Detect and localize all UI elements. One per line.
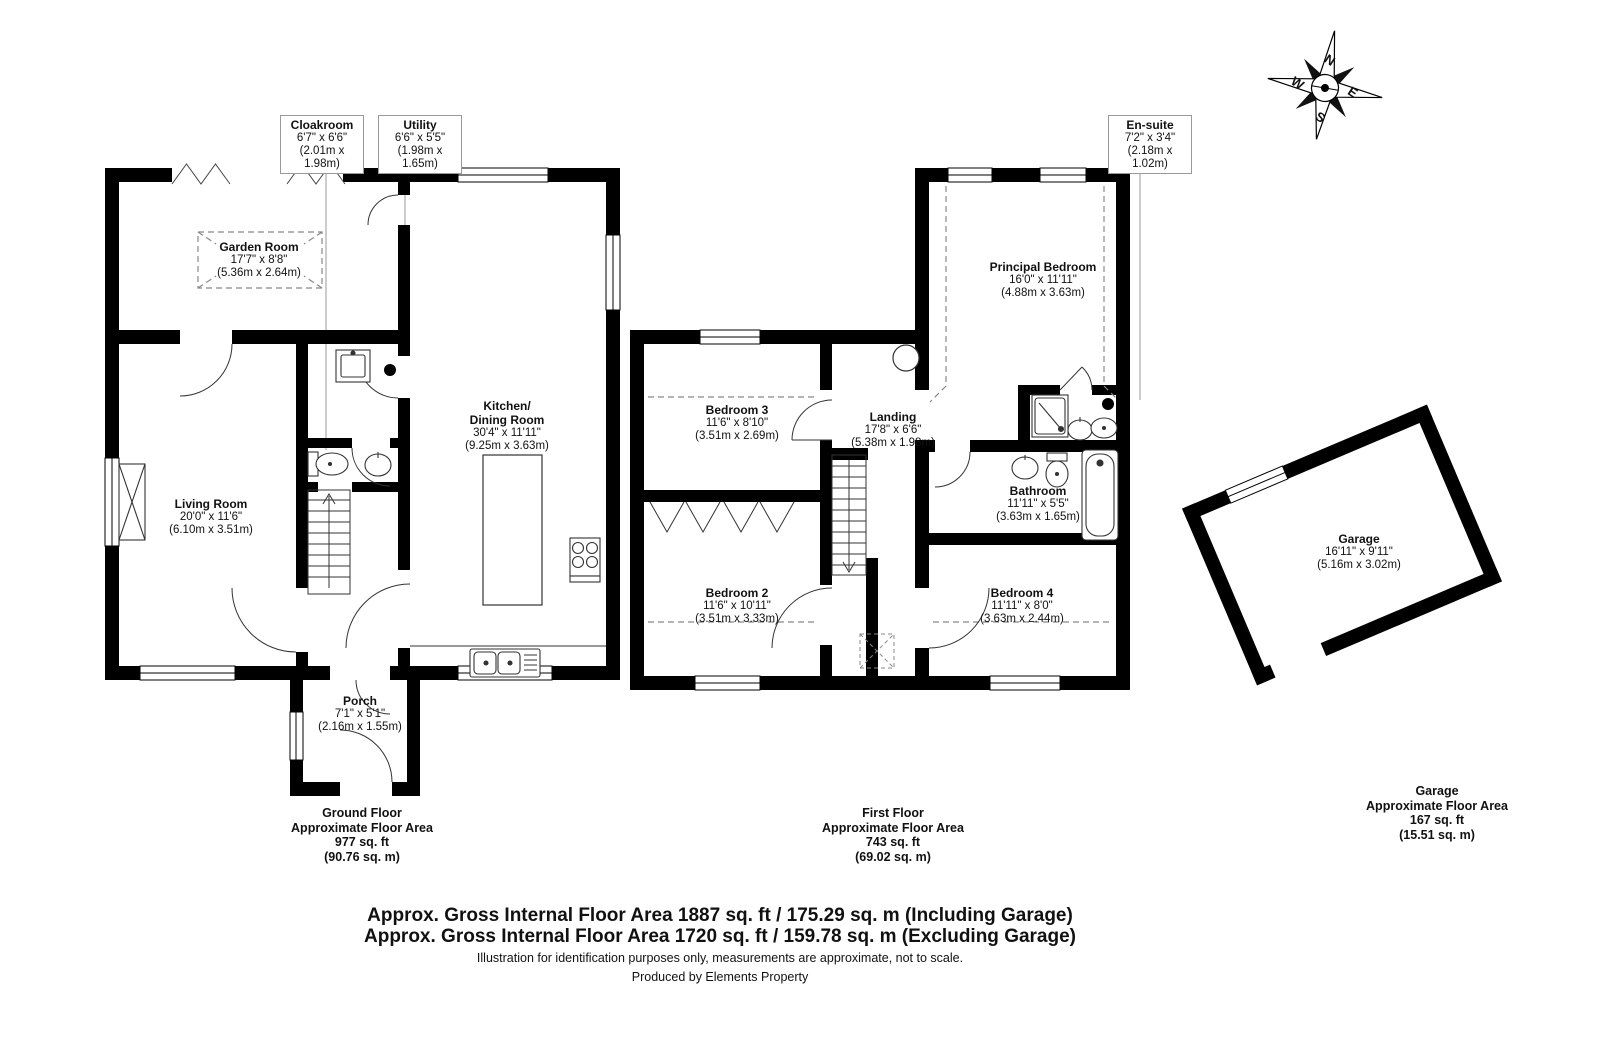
living-room-size-imperial: 20'0" x 11'6" [169, 511, 253, 524]
label-principal-bedroom: Principal Bedroom 16'0" x 11'11" (4.88m … [990, 260, 1097, 300]
kitchen-island [483, 455, 542, 605]
garage-summary: Garage Approximate Floor Area 167 sq. ft… [1366, 784, 1508, 842]
label-bedroom-3: Bedroom 3 11'6" x 8'10" (3.51m x 2.69m) [695, 403, 779, 443]
footer-text-block: Approx. Gross Internal Floor Area 1887 s… [364, 905, 1076, 985]
kitchen-size-metric: (9.25m x 3.63m) [465, 440, 549, 453]
bathroom-size-metric: (3.63m x 1.65m) [996, 511, 1080, 524]
ground-floor-area-label: Approximate Floor Area [291, 821, 433, 836]
garage-area-sqm: (15.51 sq. m) [1366, 828, 1508, 843]
fireplace [119, 464, 145, 540]
garage-name: Garage [1317, 532, 1401, 546]
bedroom-2-name: Bedroom 2 [695, 586, 779, 600]
garage-area-label: Approximate Floor Area [1366, 799, 1508, 814]
garage-area-sqft: 167 sq. ft [1366, 813, 1508, 828]
garden-room-name: Garden Room [217, 240, 301, 254]
disclaimer-text: Illustration for identification purposes… [364, 951, 1076, 966]
living-room-size-metric: (6.10m x 3.51m) [169, 524, 253, 537]
cloakroom-size-metric: (2.01m x 1.98m) [283, 145, 361, 171]
bedroom-2-size-imperial: 11'6" x 10'11" [695, 600, 779, 613]
garage-size-metric: (5.16m x 3.02m) [1317, 559, 1401, 572]
ground-floor-area-sqft: 977 sq. ft [291, 835, 433, 850]
utility-name: Utility [381, 118, 459, 132]
door-hinge-dot [384, 364, 396, 376]
living-room-name: Living Room [169, 497, 253, 511]
bedroom-4-size-metric: (3.63m x 2.44m) [980, 613, 1064, 626]
label-porch: Porch 7'1" x 5'1" (2.16m x 1.55m) [318, 694, 402, 734]
label-bedroom-2: Bedroom 2 11'6" x 10'11" (3.51m x 3.33m) [695, 586, 779, 626]
garage-title: Garage [1366, 784, 1508, 799]
kitchen-name-line2: Dining Room [465, 413, 549, 427]
ground-floor-title: Ground Floor [291, 806, 433, 821]
label-garden-room: Garden Room 17'7" x 8'8" (5.36m x 2.64m) [217, 240, 301, 280]
principal-bedroom-size-metric: (4.88m x 3.63m) [990, 287, 1097, 300]
landing-name: Landing [851, 410, 935, 424]
porch-size-metric: (2.16m x 1.55m) [318, 721, 402, 734]
ground-floor-summary: Ground Floor Approximate Floor Area 977 … [291, 806, 433, 864]
cloakroom-toilet [308, 452, 348, 476]
first-floor-area-label: Approximate Floor Area [822, 821, 964, 836]
bathroom-toilet [1046, 453, 1068, 487]
bedroom-2-size-metric: (3.51m x 3.33m) [695, 613, 779, 626]
gross-area-excluding-garage: Approx. Gross Internal Floor Area 1720 s… [364, 926, 1076, 947]
producer-credit: Produced by Elements Property [364, 970, 1076, 985]
first-floor-area-sqft: 743 sq. ft [822, 835, 964, 850]
compass-rose: N E S W [1259, 21, 1392, 149]
label-living-room: Living Room 20'0" x 11'6" (6.10m x 3.51m… [169, 497, 253, 537]
principal-bedroom-size-imperial: 16'0" x 11'11" [990, 274, 1097, 287]
ground-floor-area-sqm: (90.76 sq. m) [291, 850, 433, 865]
garden-room-size-metric: (5.36m x 2.64m) [217, 267, 301, 280]
compass-south-label: S [1313, 109, 1329, 126]
first-floor-summary: First Floor Approximate Floor Area 743 s… [822, 806, 964, 864]
utility-size-metric: (1.98m x 1.65m) [381, 145, 459, 171]
lobby-dot [1102, 398, 1114, 410]
floorplan-page: N E S W Cloakroom 6'7" x 6'6" (2.01m x 1… [0, 0, 1600, 1062]
bathroom-bathtub [1082, 450, 1118, 540]
callout-cloakroom: Cloakroom 6'7" x 6'6" (2.01m x 1.98m) [280, 115, 364, 174]
first-floor-title: First Floor [822, 806, 964, 821]
bathroom-size-imperial: 11'11" x 5'5" [996, 498, 1080, 511]
gross-area-including-garage: Approx. Gross Internal Floor Area 1887 s… [364, 905, 1076, 926]
bathroom-basin [1012, 455, 1038, 479]
ensuite-name: En-suite [1111, 118, 1189, 132]
ground-floor-windows [105, 168, 620, 760]
bedroom-3-size-metric: (3.51m x 2.69m) [695, 430, 779, 443]
porch-name: Porch [318, 694, 402, 708]
label-bedroom-4: Bedroom 4 11'11" x 8'0" (3.63m x 2.44m) [980, 586, 1064, 626]
label-landing: Landing 17'8" x 6'6" (5.38m x 1.98m) [851, 410, 935, 450]
utility-size-imperial: 6'6" x 5'5" [381, 132, 459, 145]
landing-size-imperial: 17'8" x 6'6" [851, 424, 935, 437]
garage-window [1225, 466, 1288, 503]
ensuite-toilet [1091, 418, 1117, 438]
kitchen-name-line1: Kitchen/ [465, 399, 549, 413]
cloakroom-size-imperial: 6'7" x 6'6" [283, 132, 361, 145]
label-garage: Garage 16'11" x 9'11" (5.16m x 3.02m) [1317, 532, 1401, 572]
ensuite-size-imperial: 7'2" x 3'4" [1111, 132, 1189, 145]
label-bathroom: Bathroom 11'11" x 5'5" (3.63m x 1.65m) [996, 484, 1080, 524]
first-floor-area-sqm: (69.02 sq. m) [822, 850, 964, 865]
label-kitchen-dining: Kitchen/ Dining Room 30'4" x 11'11" (9.2… [465, 399, 549, 453]
ground-floor-stairs [308, 490, 350, 594]
landing-size-metric: (5.38m x 1.98m) [851, 437, 935, 450]
ensuite-size-metric: (2.18m x 1.02m) [1111, 145, 1189, 171]
cloakroom-basin [365, 452, 391, 476]
first-floor-stairs [832, 455, 866, 575]
porch-size-imperial: 7'1" x 5'1" [318, 708, 402, 721]
bedroom-3-name: Bedroom 3 [695, 403, 779, 417]
bedroom-4-size-imperial: 11'11" x 8'0" [980, 600, 1064, 613]
kitchen-hob [570, 538, 600, 582]
callout-ensuite: En-suite 7'2" x 3'4" (2.18m x 1.02m) [1108, 115, 1192, 174]
utility-sink [336, 350, 370, 382]
cloakroom-name: Cloakroom [283, 118, 361, 132]
kitchen-size-imperial: 30'4" x 11'11" [465, 427, 549, 440]
bedroom-4-name: Bedroom 4 [980, 586, 1064, 600]
bedroom-3-size-imperial: 11'6" x 8'10" [695, 417, 779, 430]
ensuite-shower [1032, 395, 1068, 437]
callout-utility: Utility 6'6" x 5'5" (1.98m x 1.65m) [378, 115, 462, 174]
kitchen-sink [470, 649, 540, 677]
principal-bedroom-name: Principal Bedroom [990, 260, 1097, 274]
garden-room-size-imperial: 17'7" x 8'8" [217, 254, 301, 267]
wardrobe-bifold-doors [650, 502, 794, 532]
bathroom-name: Bathroom [996, 484, 1080, 498]
landing-round-window [893, 345, 919, 371]
ensuite-basin [1068, 417, 1092, 440]
garage-size-imperial: 16'11" x 9'11" [1317, 546, 1401, 559]
